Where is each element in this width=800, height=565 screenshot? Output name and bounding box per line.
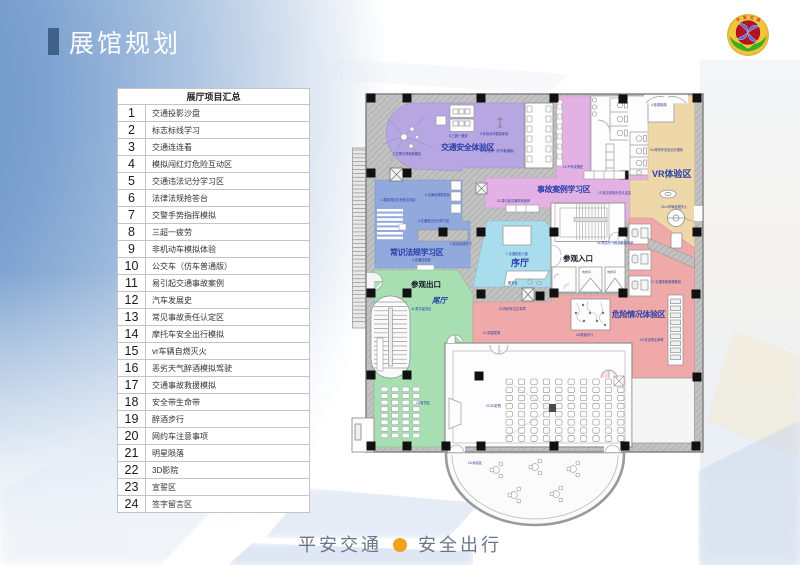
svg-text:17.交通事故救援模拟: 17.交通事故救援模拟 — [651, 279, 682, 284]
svg-text:2.标志标线学习: 2.标志标线学习 — [450, 241, 472, 246]
svg-text:22.3D影院: 22.3D影院 — [486, 403, 502, 408]
svg-text:参观入口: 参观入口 — [563, 253, 593, 263]
svg-text:11.易引起交通事故案例: 11.易引起交通事故案例 — [497, 198, 530, 203]
svg-text:18.醉酒步行: 18.醉酒步行 — [576, 332, 594, 337]
svg-text:VR体验区: VR体验区 — [652, 168, 692, 179]
svg-text:13.常见事故责任认定区: 13.常见事故责任认定区 — [598, 190, 632, 195]
svg-text:事故案例学习区: 事故案例学习区 — [537, 184, 591, 194]
svg-text:9.非机动车模拟体验: 9.非机动车模拟体验 — [480, 131, 509, 136]
svg-text:7.交警手势指挥模拟: 7.交警手势指挥模拟 — [393, 151, 422, 156]
svg-text:5.交通违法记分学习区: 5.交通违法记分学习区 — [418, 218, 450, 223]
svg-text:20.网约车注意事项: 20.网约车注意事项 — [499, 306, 527, 311]
svg-text:4.参观电梯: 4.参观电梯 — [651, 102, 667, 107]
svg-text:参观出口: 参观出口 — [411, 279, 441, 289]
svg-text:8.三超一疲劳: 8.三超一疲劳 — [449, 133, 468, 138]
svg-text:16.休息区: 16.休息区 — [468, 460, 483, 465]
svg-text:15.vr车辆自燃灭火: 15.vr车辆自燃灭火 — [661, 204, 688, 209]
svg-text:10.公交车（仿车普通版）: 10.公交车（仿车普通版） — [480, 148, 516, 153]
svg-text:3.交通连连看: 3.交通连连看 — [412, 257, 431, 262]
svg-text:服务台: 服务台 — [508, 280, 518, 285]
svg-text:14.摩托车安全出行模拟: 14.摩托车安全出行模拟 — [650, 147, 684, 152]
svg-text:尾厅: 尾厅 — [431, 296, 448, 305]
svg-text:电梯间: 电梯间 — [607, 269, 616, 274]
svg-text:4.模拟闯红灯危险互动区: 4.模拟闯红灯危险互动区 — [381, 197, 416, 202]
svg-text:6.法律法规抢答台: 6.法律法规抢答台 — [425, 192, 450, 197]
svg-text:电梯间: 电梯间 — [582, 269, 591, 274]
svg-text:23.宣誓区: 23.宣誓区 — [416, 400, 431, 405]
svg-text:序厅: 序厅 — [511, 257, 529, 268]
svg-text:19.安全带生命带: 19.安全带生命带 — [640, 337, 664, 342]
svg-text:21.明星陨落: 21.明星陨落 — [483, 330, 501, 335]
svg-text:常识法规学习区: 常识法规学习区 — [390, 247, 444, 257]
svg-text:危险情况体验区: 危险情况体验区 — [611, 309, 666, 319]
svg-text:24.签字留言区: 24.签字留言区 — [411, 306, 432, 311]
svg-text:1.交通投影沙盘: 1.交通投影沙盘 — [506, 251, 529, 256]
svg-text:12.汽车发展史: 12.汽车发展史 — [563, 164, 584, 169]
svg-text:16.恶劣天气醉酒模拟驾驶: 16.恶劣天气醉酒模拟驾驶 — [597, 240, 634, 245]
